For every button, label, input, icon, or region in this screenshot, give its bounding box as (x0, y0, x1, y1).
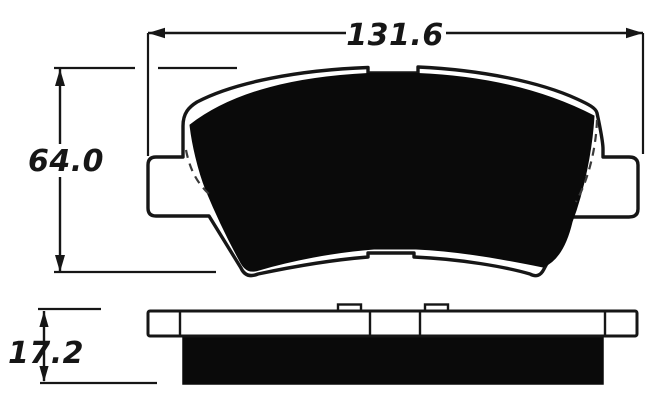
side-view (148, 305, 637, 385)
backing-plate-side (148, 311, 637, 336)
width-dimension-label: 131.6 (346, 18, 443, 53)
friction-material-side (183, 336, 603, 384)
arrowhead-up-icon (39, 311, 48, 327)
front-view (148, 67, 638, 276)
arrowhead-down-icon (55, 255, 65, 272)
friction-material-front (190, 74, 594, 272)
shim-tab-left (338, 305, 361, 312)
arrowhead-right-icon (626, 28, 643, 38)
brake-pad-technical-drawing: 131.6 64.0 (0, 0, 672, 414)
arrowhead-up-icon (55, 69, 65, 86)
height-dimension-label: 64.0 (28, 144, 104, 179)
thickness-dimension: 17.2 (8, 309, 157, 383)
drawing-canvas: 131.6 64.0 (0, 0, 672, 414)
arrowhead-left-icon (148, 28, 165, 38)
shim-tab-right (425, 305, 448, 312)
thickness-dimension-label: 17.2 (8, 336, 84, 371)
